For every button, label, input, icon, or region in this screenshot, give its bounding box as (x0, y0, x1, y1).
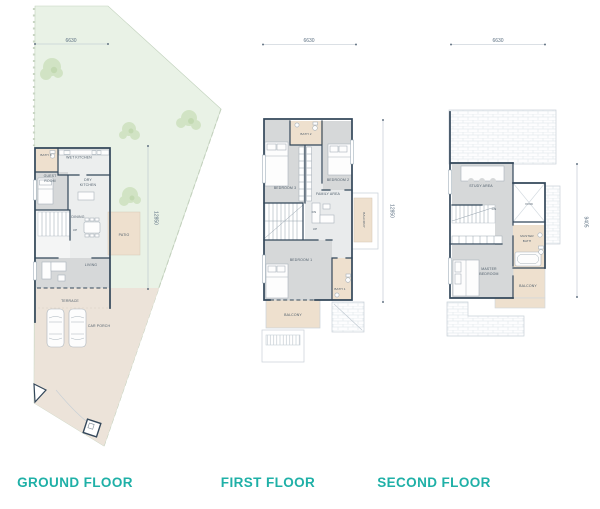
room-label-dn: DN (492, 207, 497, 211)
room-label-dn: DN (312, 210, 317, 214)
room-label-master-bedroom-1: MASTER (481, 267, 497, 271)
window (34, 262, 37, 280)
first-floor-plan: 6630 12850 BATH 2 BEDROOM 3 BEDROOM 2 FA… (262, 38, 395, 362)
room-label-bedroom1: BEDROOM 1 (290, 258, 312, 262)
balcony (513, 268, 545, 298)
side-roof-strip (545, 186, 560, 244)
upper-roof (449, 110, 556, 164)
second-floor-plan: 6630 9405 STUDY AREA DN VOID MASTER BATH… (447, 38, 589, 336)
ground-stairs (38, 212, 70, 236)
first-stairs (265, 203, 303, 240)
window (351, 140, 354, 164)
dim-label-depth: 12850 (389, 204, 395, 218)
room-label-car-porch: CAR PORCH (88, 324, 111, 328)
floor-plan-sheet: 6630 12850 BATH 3 WET KITCHEN GUEST ROOM… (0, 0, 600, 509)
room-label-study: STUDY AREA (469, 184, 493, 188)
second-stairs (452, 205, 495, 223)
balcony-extension (495, 298, 545, 308)
window (34, 180, 37, 200)
dim-label-depth: 9405 (583, 216, 589, 227)
window (263, 155, 266, 183)
room-label-bath2: BATH 2 (300, 132, 311, 136)
second-dim-width: 6630 (450, 38, 546, 45)
room-label-family-area: FAMILY AREA (316, 192, 341, 196)
dim-label-width: 6630 (492, 38, 503, 44)
room-label-terrace: TERRACE (61, 299, 79, 303)
room-label-master-bath-2: BATH (523, 239, 531, 243)
dim-label-depth: 12850 (153, 211, 159, 225)
window (263, 255, 266, 283)
ground-floor-title: GROUND FLOOR (15, 475, 135, 490)
room-label-balcony: BALCONY (284, 313, 302, 317)
room-label-guest-1: GUEST (44, 174, 58, 178)
room-label-living: LIVING (85, 263, 98, 267)
room-label-bath1: BATH 1 (334, 287, 345, 291)
room-label-dry-1: DRY (84, 178, 92, 182)
first-dim-depth: 12850 (382, 119, 394, 303)
car (47, 309, 64, 347)
room-label-dry-2: KITCHEN (80, 183, 97, 187)
room-label-wet-kitchen: WET KITCHEN (66, 156, 92, 160)
room-label-balcony: BALCONY (519, 284, 537, 288)
room-label-patio: PATIO (119, 233, 130, 237)
second-floor-title: SECOND FLOOR (374, 475, 494, 490)
master-bed (453, 260, 479, 296)
bedroom3-bed (265, 142, 288, 186)
bedroom1-bed (266, 264, 288, 298)
room-label-bedroom2: BEDROOM 2 (327, 178, 349, 182)
room-label-dining: DINING (71, 215, 84, 219)
ground-floor-plan: 6630 12850 BATH 3 WET KITCHEN GUEST ROOM… (34, 6, 222, 446)
second-dim-depth: 9405 (576, 163, 588, 298)
wardrobe (452, 236, 502, 244)
room-label-balcony-side: BALCONY (362, 212, 366, 228)
room-label-up: UP (73, 228, 78, 232)
room-label-guest-2: ROOM (44, 179, 56, 183)
lower-roof (332, 302, 364, 332)
window (449, 170, 452, 194)
bedroom2-bed (328, 144, 352, 175)
pergola (262, 330, 304, 362)
room-label-bedroom3: BEDROOM 3 (274, 186, 296, 190)
dim-label-width: 6630 (303, 38, 314, 44)
car (69, 309, 86, 347)
first-dim-width: 6630 (262, 38, 357, 45)
room-label-master-bedroom-2: BEDROOM (479, 272, 498, 276)
room-corridor (332, 240, 352, 258)
room-label-void: VOID (525, 202, 534, 206)
floor-plans-canvas: 6630 12850 BATH 3 WET KITCHEN GUEST ROOM… (0, 0, 600, 509)
room-label-master-bath-1: MASTER (520, 234, 534, 238)
window (449, 258, 452, 284)
dining-table (84, 218, 100, 237)
room-label-bath3: BATH 3 (40, 153, 51, 157)
dim-label-width: 6630 (65, 38, 76, 44)
first-floor-title: FIRST FLOOR (208, 475, 328, 490)
room-label-up: UP (313, 227, 318, 231)
